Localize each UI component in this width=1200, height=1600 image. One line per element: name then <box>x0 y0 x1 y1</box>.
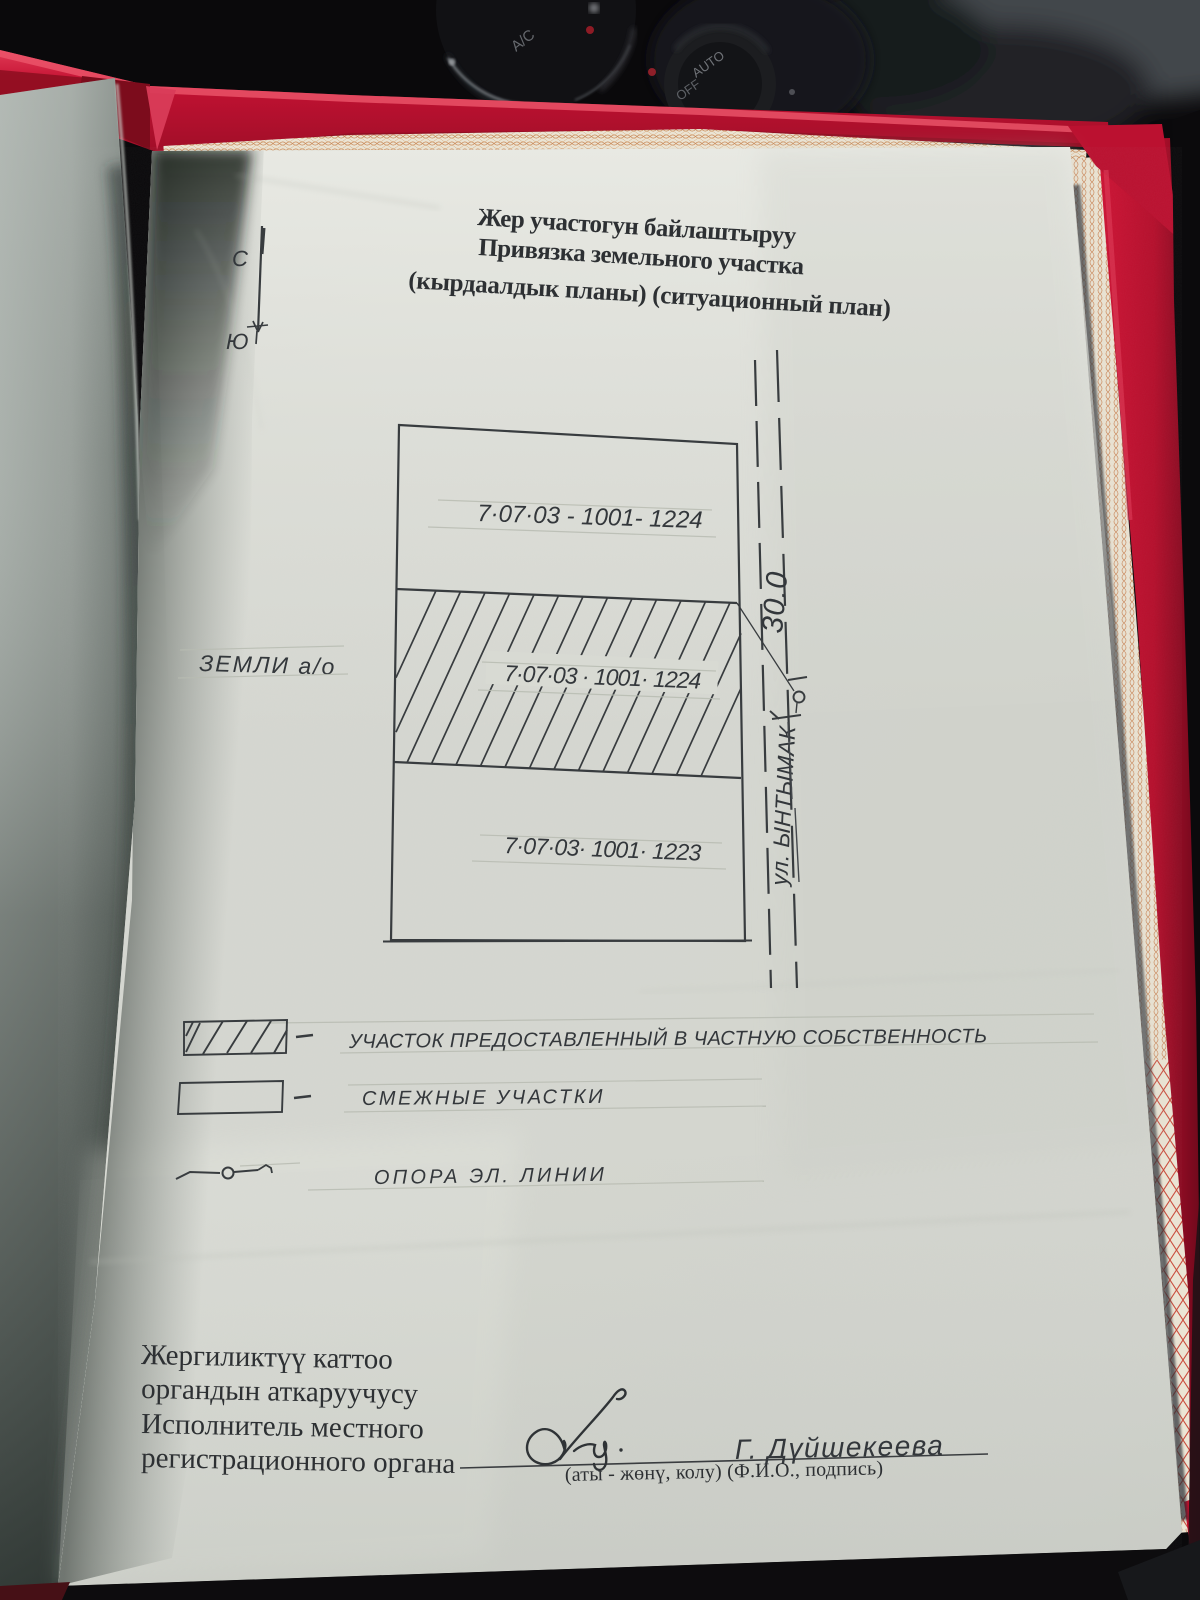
svg-text:Жергиликтүү каттоо: Жергиликтүү каттоо <box>141 1339 393 1376</box>
svg-text:ОПОРА ЭЛ. ЛИНИИ: ОПОРА ЭЛ. ЛИНИИ <box>374 1164 607 1189</box>
svg-text:Исполнитель местного: Исполнитель местного <box>141 1408 424 1445</box>
svg-text:С: С <box>232 246 248 271</box>
svg-text:регистрационного органа: регистрационного органа <box>141 1442 456 1480</box>
svg-text:Ю: Ю <box>226 329 249 354</box>
svg-text:30.0: 30.0 <box>756 570 794 635</box>
svg-text:органдын аткаруучусу: органдын аткаруучусу <box>141 1373 419 1410</box>
svg-text:СМЕЖНЫЕ УЧАСТКИ: СМЕЖНЫЕ УЧАСТКИ <box>362 1086 605 1110</box>
